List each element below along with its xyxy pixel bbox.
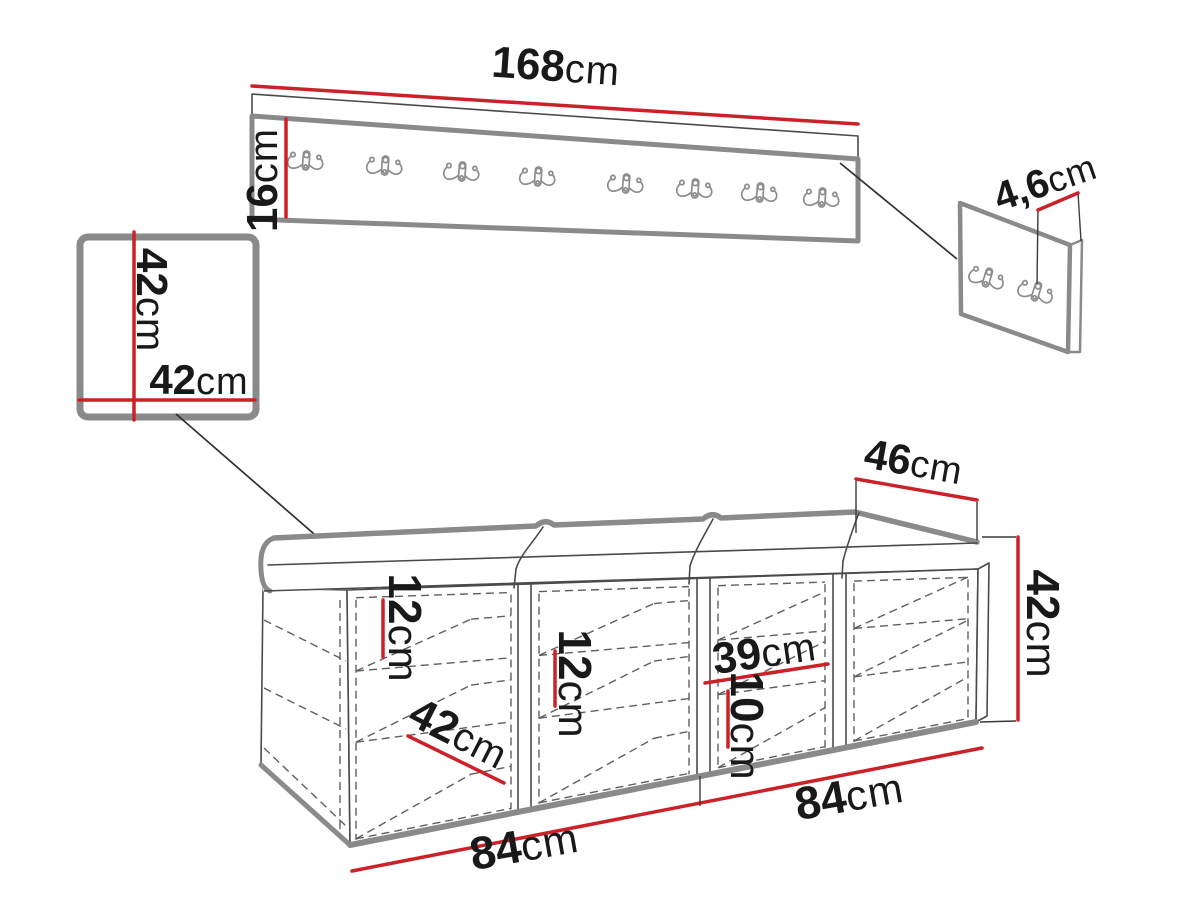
- diagram-svg: 168cm 16cm 4,6cm 42cm 42cm: [0, 0, 1200, 900]
- cabinet-height-label: 42cm: [127, 248, 176, 352]
- cabinet-width-label: 42cm: [149, 356, 248, 403]
- small-hook-panel-drawing: 4,6cm: [960, 144, 1102, 352]
- bench-shelf-gap-left-label: 12cm: [379, 573, 431, 682]
- bench-shelf-height-label: 10cm: [721, 671, 773, 780]
- panel-depth-extension-line: [1078, 193, 1081, 241]
- bench-height-extension-line: [980, 721, 1016, 722]
- bench-height-label: 42cm: [1017, 569, 1069, 678]
- wall-cabinet-drawing: 42cm 42cm: [79, 232, 256, 420]
- bench-right-edge-face: [976, 563, 989, 722]
- bench-shelf-gap-middle-label: 12cm: [549, 629, 601, 738]
- wall-hook-rack-drawing: 168cm 16cm: [238, 38, 858, 241]
- bench-drawing: 46cm 42cm 12cm 12cm 39cm 10cm 42cm 84cm …: [261, 430, 1069, 880]
- bench-width-right-label: 84cm: [791, 760, 908, 830]
- rack-width-label: 168cm: [490, 38, 622, 96]
- panel-front-face: [960, 203, 1070, 352]
- panel-depth-extension-line: [1037, 210, 1038, 284]
- rack-height-label: 16cm: [238, 128, 287, 232]
- furniture-dimension-diagram: 168cm 16cm 4,6cm 42cm 42cm: [0, 0, 1200, 900]
